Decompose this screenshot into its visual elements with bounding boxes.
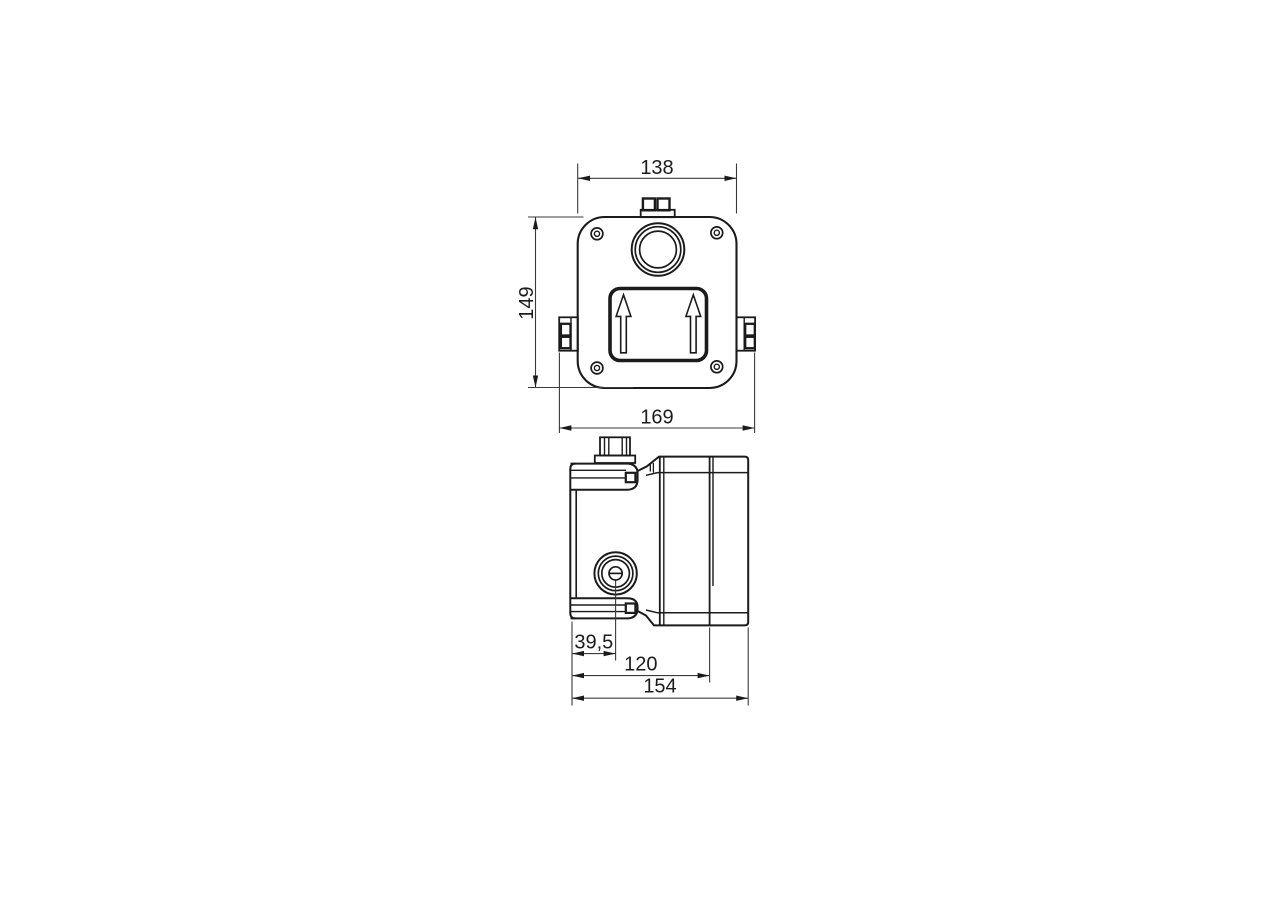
dim-label-knob-offset: 39,5 [574,632,613,654]
side-top-connector [595,437,635,463]
connector-lug-right [658,199,670,211]
dim-label-height: 149 [516,286,538,319]
flange-bottom-lip [571,598,638,618]
screw-top-left [591,228,603,240]
arrow-up-icon-left [616,295,631,353]
housing-body [638,457,749,626]
dim-label-overall-width: 169 [640,407,673,429]
opening-middle-ring [635,227,681,273]
dim-label-overall-depth: 154 [643,676,676,698]
screw-bottom-right [711,361,723,373]
technical-drawing-page: 138 149 169 [0,0,1280,900]
arrow-up-icon-right [686,295,701,353]
side-tab-right [737,317,756,350]
round-opening [632,223,685,276]
side-view: 39,5 120 154 [570,437,748,705]
dim-label-top-width: 138 [640,157,673,179]
top-clip-hook [626,473,636,482]
side-tab-left [559,317,578,350]
dim-label-body-depth: 120 [624,654,657,676]
screw-bottom-left [591,362,603,374]
valve-box-dimension-drawing: 138 149 169 [0,0,1280,900]
connector-lug-left [643,199,655,211]
front-view: 138 149 169 [516,157,755,433]
screw-top-right [711,227,723,239]
flange-top-lip [571,464,638,490]
opening-inner-ring [640,231,677,268]
bottom-clip-hook [626,604,636,613]
flange-front-face [570,464,576,619]
protection-plate [610,289,707,361]
dimension-149: 149 [516,217,634,388]
dimension-169: 169 [559,353,754,434]
front-top-connector [641,199,675,218]
